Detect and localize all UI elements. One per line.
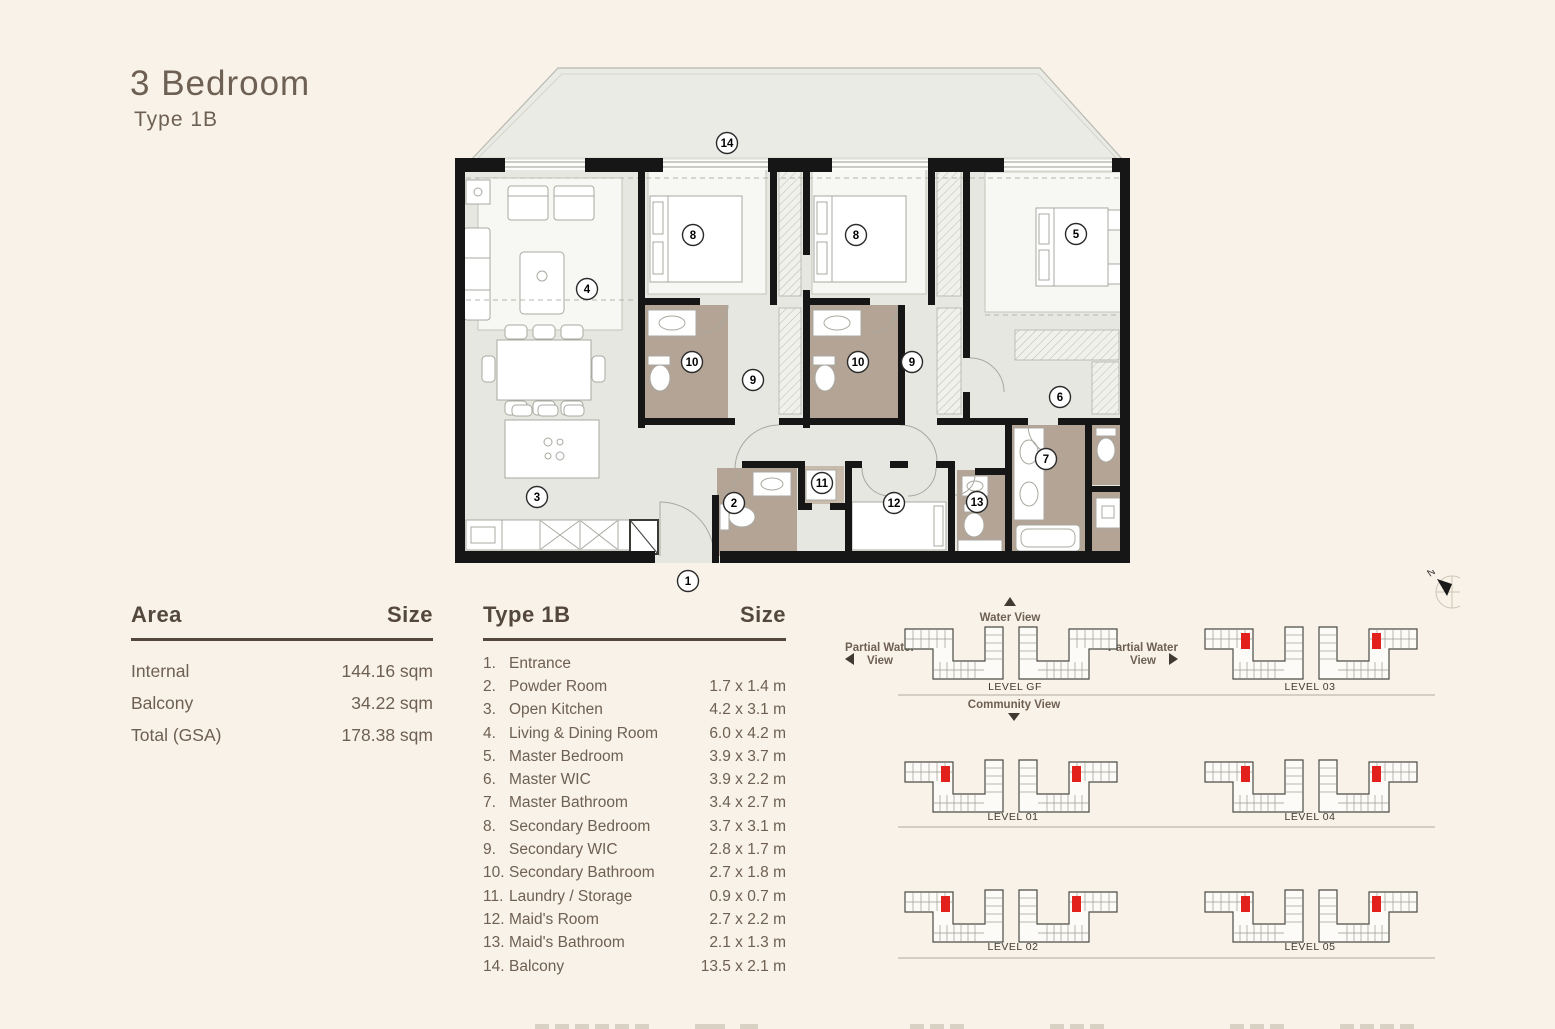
level-label: LEVEL 01	[988, 811, 1039, 823]
highlighted-unit	[1372, 633, 1381, 649]
room-row-name: Open Kitchen	[509, 701, 709, 719]
room-row-size: 3.7 x 3.1 m	[709, 818, 786, 836]
rooms-table-row: 12.Maid's Room2.7 x 2.2 m	[483, 908, 786, 931]
room-marker-label: 4	[584, 284, 591, 296]
rooms-table-row: 6.Master WIC3.9 x 2.2 m	[483, 768, 786, 791]
arrow-left-icon	[845, 653, 854, 665]
room-marker-label: 9	[750, 375, 756, 387]
room-marker-label: 11	[816, 478, 829, 490]
level-label: LEVEL GF	[988, 681, 1042, 693]
rooms-table-header: Type 1B Size	[483, 602, 786, 641]
highlighted-unit	[1241, 633, 1250, 649]
area-row-label: Total (GSA)	[131, 725, 221, 746]
room-row-name: Entrance	[509, 655, 786, 673]
room-row-size: 0.9 x 0.7 m	[709, 888, 786, 906]
rooms-table-row: 3.Open Kitchen4.2 x 3.1 m	[483, 699, 786, 722]
room-row-number: 5.	[483, 748, 509, 766]
room-row-number: 1.	[483, 655, 509, 673]
room-row-number: 13.	[483, 934, 509, 952]
area-table-row: Total (GSA)178.38 sqm	[131, 725, 433, 746]
area-table: Area Size Internal144.16 sqmBalcony34.22…	[131, 602, 433, 746]
arrow-down-icon	[1008, 713, 1020, 721]
area-header-size: Size	[387, 602, 433, 628]
rooms-header-label: Type 1B	[483, 602, 570, 628]
room-row-number: 6.	[483, 771, 509, 789]
cutoff-bottom-strip	[440, 1021, 1450, 1029]
rooms-table-row: 4.Living & Dining Room6.0 x 4.2 m	[483, 722, 786, 745]
level-label: LEVEL 05	[1285, 941, 1336, 953]
highlighted-unit	[1241, 896, 1250, 912]
area-table-row: Internal144.16 sqm	[131, 661, 433, 682]
room-row-size: 2.8 x 1.7 m	[709, 841, 786, 859]
room-row-name: Secondary WIC	[509, 841, 709, 859]
room-row-number: 12.	[483, 911, 509, 929]
rooms-table-row: 9.Secondary WIC2.8 x 1.7 m	[483, 838, 786, 861]
water-view-label: Water View	[980, 612, 1041, 624]
room-row-number: 9.	[483, 841, 509, 859]
highlighted-unit	[941, 766, 950, 782]
room-row-number: 8.	[483, 818, 509, 836]
area-row-label: Internal	[131, 661, 189, 682]
room-row-name: Master WIC	[509, 771, 709, 789]
room-row-name: Maid's Bathroom	[509, 934, 709, 952]
room-marker-label: 3	[534, 492, 540, 504]
page-title: 3 Bedroom	[130, 64, 310, 104]
room-marker-label: 7	[1043, 454, 1049, 466]
room-marker-label: 6	[1057, 392, 1063, 404]
room-row-name: Laundry / Storage	[509, 888, 709, 906]
page-title-block: 3 Bedroom Type 1B	[130, 64, 310, 132]
room-marker-label: 14	[721, 138, 734, 150]
level-label: LEVEL 03	[1285, 681, 1336, 693]
room-row-number: 11.	[483, 888, 509, 906]
rooms-table: Type 1B Size 1.Entrance2.Powder Room1.7 …	[483, 602, 786, 978]
room-marker-label: 10	[686, 357, 699, 369]
room-row-name: Secondary Bathroom	[509, 864, 709, 882]
room-row-name: Master Bathroom	[509, 794, 709, 812]
area-table-row: Balcony34.22 sqm	[131, 693, 433, 714]
area-table-rows: Internal144.16 sqmBalcony34.22 sqmTotal …	[131, 661, 433, 746]
room-row-number: 3.	[483, 701, 509, 719]
partial-water-right-label: Partial Water	[1108, 642, 1178, 654]
room-row-name: Living & Dining Room	[509, 725, 709, 743]
view-labels: Water View Partial Water View Partial Wa…	[845, 597, 1178, 721]
room-row-size: 3.9 x 2.2 m	[709, 771, 786, 789]
rooms-table-row: 14.Balcony13.5 x 2.1 m	[483, 955, 786, 978]
room-marker-label: 5	[1073, 229, 1080, 241]
room-row-size: 2.7 x 1.8 m	[709, 864, 786, 882]
level-label: LEVEL 04	[1285, 811, 1336, 823]
rooms-table-row: 11.Laundry / Storage0.9 x 0.7 m	[483, 885, 786, 908]
room-marker-label: 8	[853, 230, 860, 242]
room-marker-label: 2	[731, 498, 737, 510]
room-row-name: Secondary Bedroom	[509, 818, 709, 836]
community-view-label: Community View	[968, 699, 1060, 711]
room-row-size: 13.5 x 2.1 m	[701, 958, 786, 976]
svg-text:View: View	[867, 655, 893, 667]
rooms-table-row: 8.Secondary Bedroom3.7 x 3.1 m	[483, 815, 786, 838]
room-row-name: Maid's Room	[509, 911, 709, 929]
arrow-up-icon	[1004, 597, 1016, 606]
level-row-gf-03: LEVEL GF LEVEL 03	[898, 627, 1435, 695]
rooms-table-row: 7.Master Bathroom3.4 x 2.7 m	[483, 792, 786, 815]
room-row-number: 4.	[483, 725, 509, 743]
rooms-table-row: 2.Powder Room1.7 x 1.4 m	[483, 675, 786, 698]
room-row-number: 14.	[483, 958, 509, 976]
area-row-value: 34.22 sqm	[351, 693, 433, 714]
rooms-table-row: 1.Entrance	[483, 652, 786, 675]
area-row-value: 144.16 sqm	[342, 661, 433, 682]
room-row-size: 6.0 x 4.2 m	[709, 725, 786, 743]
north-label: N	[1425, 570, 1437, 579]
room-row-size: 3.9 x 3.7 m	[709, 748, 786, 766]
area-row-value: 178.38 sqm	[342, 725, 433, 746]
rooms-table-row: 13.Maid's Bathroom2.1 x 1.3 m	[483, 932, 786, 955]
rooms-header-size: Size	[740, 602, 786, 628]
north-compass-icon: N	[1425, 570, 1460, 608]
room-row-name: Balcony	[509, 958, 701, 976]
highlighted-unit	[1241, 766, 1250, 782]
level-row-02-05: LEVEL 02 LEVEL 05	[898, 890, 1435, 958]
room-row-number: 2.	[483, 678, 509, 696]
room-row-name: Master Bedroom	[509, 748, 709, 766]
room-row-size: 2.1 x 1.3 m	[709, 934, 786, 952]
balcony-area	[470, 68, 1124, 161]
highlighted-unit	[1372, 766, 1381, 782]
room-row-number: 7.	[483, 794, 509, 812]
highlighted-unit	[941, 896, 950, 912]
area-row-label: Balcony	[131, 693, 193, 714]
room-marker-label: 10	[852, 357, 865, 369]
area-table-header: Area Size	[131, 602, 433, 641]
highlighted-unit	[1072, 896, 1081, 912]
highlighted-unit	[1372, 896, 1381, 912]
rooms-table-row: 5.Master Bedroom3.9 x 3.7 m	[483, 745, 786, 768]
area-header-label: Area	[131, 602, 182, 628]
level-key-plans: N Water View Partial Water View Partial …	[835, 570, 1460, 980]
room-row-name: Powder Room	[509, 678, 709, 696]
rooms-table-row: 10.Secondary Bathroom2.7 x 1.8 m	[483, 862, 786, 885]
floor-plan: 1 2 3 4 5 6 7 8 8 9 9 10 10 11 12 13 14	[435, 48, 1160, 598]
room-marker-label: 1	[685, 576, 692, 588]
rooms-table-rows: 1.Entrance2.Powder Room1.7 x 1.4 m3.Open…	[483, 652, 786, 978]
page-subtitle: Type 1B	[134, 108, 310, 132]
arrow-right-icon	[1169, 653, 1178, 665]
room-marker-label: 13	[971, 497, 984, 509]
svg-text:View: View	[1130, 655, 1156, 667]
highlighted-unit	[1072, 766, 1081, 782]
level-row-01-04: LEVEL 01 LEVEL 04	[898, 760, 1435, 827]
room-row-size: 3.4 x 2.7 m	[709, 794, 786, 812]
room-marker-label: 9	[909, 357, 915, 369]
room-row-number: 10.	[483, 864, 509, 882]
room-row-size: 4.2 x 3.1 m	[709, 701, 786, 719]
room-row-size: 2.7 x 2.2 m	[709, 911, 786, 929]
room-row-size: 1.7 x 1.4 m	[709, 678, 786, 696]
level-label: LEVEL 02	[988, 941, 1039, 953]
room-marker-label: 12	[888, 498, 901, 510]
room-marker-label: 8	[690, 230, 697, 242]
